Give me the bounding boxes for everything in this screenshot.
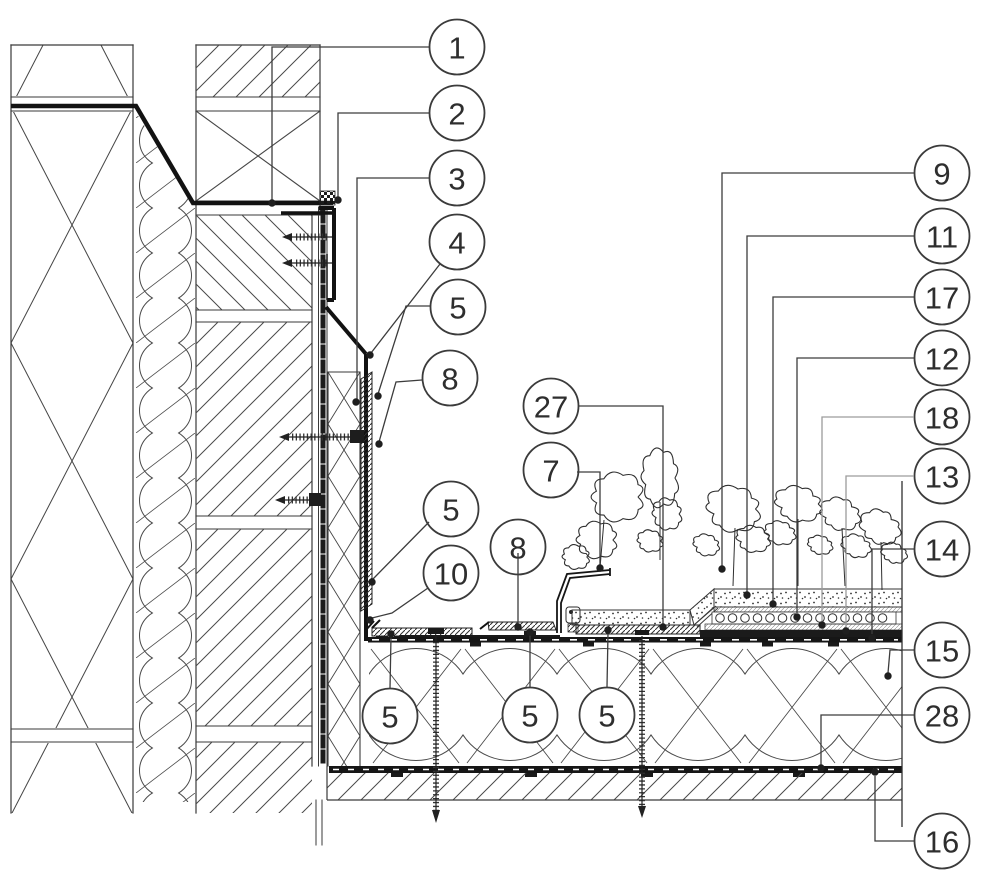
callout-4: 4 [430,215,485,270]
callout-17-target-dot [769,600,776,607]
callout-1-target-dot [268,199,275,206]
callout-5c-label: 5 [381,700,398,735]
plant [652,498,682,530]
callout-2-leader [338,113,429,197]
callout-1: 1 [430,20,485,75]
masonry-x-block [196,111,320,201]
callout-16-label: 16 [925,825,959,860]
callout-28: 28 [915,688,970,743]
callout-9: 9 [915,146,970,201]
callout-10-target-dot [366,616,373,623]
callout-11: 11 [915,209,970,264]
substrate-lower [572,610,690,625]
callout-14-label: 14 [925,533,959,568]
edge-batten-strip [361,372,372,611]
callout-3-label: 3 [448,162,465,197]
callout-2-target-dot [334,196,341,203]
callout-27-target-dot [659,623,666,630]
callout-27-leader [579,406,663,624]
callout-4-label: 4 [448,226,465,261]
plant [562,545,589,570]
callout-5d-label: 5 [521,699,538,734]
callout-14-target-dot [868,634,875,641]
masonry-top-course [196,45,320,97]
callout-11-leader [747,236,914,592]
plant [859,509,901,544]
callout-7-label: 7 [542,454,559,489]
callout-13: 13 [915,449,970,504]
callout-27-label: 27 [534,390,568,425]
callout-12-target-dot [793,613,800,620]
substrate-ramp [690,589,714,625]
plant [591,472,643,522]
sealant-joint [320,191,335,205]
callout-15-label: 15 [925,634,959,669]
callout-5c-target-dot [387,630,394,637]
callout-8a: 8 [423,351,478,406]
roof-flashing-left [372,628,472,636]
callout-10-label: 10 [434,557,468,592]
callout-9-leader [722,173,914,566]
callout-8a-label: 8 [441,362,458,397]
callout-9-label: 9 [933,157,950,192]
callout-8a-target-dot [375,440,382,447]
callout-2: 2 [430,86,485,141]
callout-18: 18 [915,390,970,445]
construction-detail-svg: 12345851027785559111712181314152816 [0,0,1000,886]
callout-2-label: 2 [448,97,465,132]
wall-outer-layer [11,45,133,813]
plant [736,525,771,552]
callout-16-target-dot [871,768,878,775]
wall-section [11,45,360,845]
callout-5d-target-dot [526,628,533,635]
detail-drawing-canvas: 12345851027785559111712181314152816 [0,0,1000,886]
callout-5a-label: 5 [449,291,466,326]
callout-18-label: 18 [925,401,959,436]
roof-insulation [369,643,902,766]
callout-9-target-dot [718,565,725,572]
plant [576,521,617,558]
roof-flashing-right [488,622,556,630]
callout-5a: 5 [431,280,486,335]
callout-5b-leader [373,522,429,579]
callout-12-leader [797,358,914,613]
callout-28-label: 28 [925,699,959,734]
callout-15: 15 [915,623,970,678]
plant [807,535,833,554]
callout-11-label: 11 [926,220,958,255]
callout-13-label: 13 [925,460,959,495]
substrate-upper [714,589,902,607]
callout-12: 12 [915,331,970,386]
callout-12-label: 12 [925,342,959,377]
callout-5d: 5 [503,688,558,743]
callout-15-target-dot [884,672,891,679]
plant-stem [733,528,735,586]
plant [820,497,861,531]
callout-17: 17 [915,270,970,325]
plant [881,542,908,563]
callout-7: 7 [524,443,579,498]
callout-13-target-dot [842,627,849,634]
filter-fleece [714,607,902,612]
callout-10: 10 [424,546,479,601]
vegetation [562,448,907,590]
callout-5e-label: 5 [598,699,615,734]
callout-3: 3 [430,151,485,206]
callout-5e-target-dot [604,626,611,633]
plant [775,485,823,522]
wall-insulation-coils [136,105,196,805]
callout-1-label: 1 [448,31,465,66]
callout-10-leader [372,588,428,618]
callout-7-target-dot [596,564,603,571]
callout-5b-label: 5 [442,493,459,528]
callout-4-target-dot [366,351,373,358]
callout-5b: 5 [424,482,479,537]
callout-3-target-dot [352,398,359,405]
callout-5e: 5 [580,688,635,743]
callout-16: 16 [915,814,970,869]
plant [693,534,720,556]
interior-wall-lines [316,800,322,845]
roof-deck-slab [327,773,902,800]
callout-14: 14 [915,522,970,577]
callout-5c: 5 [363,689,418,744]
callout-18-target-dot [818,621,825,628]
plant [641,448,678,508]
callout-11-target-dot [743,591,750,598]
callout-17-label: 17 [925,281,959,316]
callout-28-target-dot [817,764,824,771]
callout-5b-target-dot [368,578,375,585]
callout-8b-target-dot [514,623,521,630]
callout-5a-target-dot [374,392,381,399]
callout-8a-leader [379,380,422,442]
callout-27: 27 [524,379,579,434]
roof-section [327,481,902,827]
plant [637,530,663,552]
